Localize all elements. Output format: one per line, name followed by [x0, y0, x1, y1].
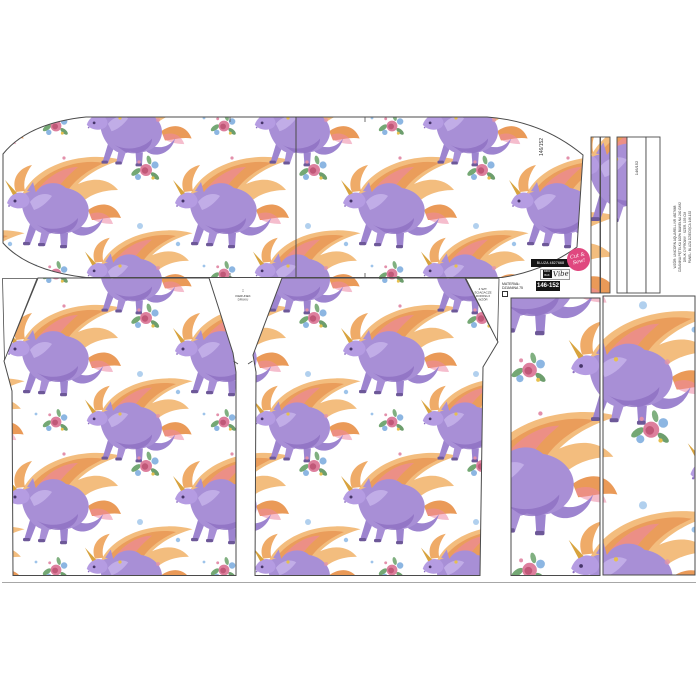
svg-text:WZÓR: WZÓR	[478, 297, 488, 302]
hood-piece-left	[511, 298, 600, 576]
bodice-front-piece	[4, 278, 236, 576]
panel-drawing: 146/152 ↕ KIERUNEK DRUKU 4 SZT. ŚCIĄGACZ…	[0, 0, 700, 700]
size-label-strip: 146/152	[634, 160, 639, 175]
cuff-strip-2	[601, 137, 611, 293]
size-label-sleeve: 146/152	[539, 138, 545, 156]
svg-text:DZIANINA PĘTELKA 100% BAWEŁNA: DZIANINA PĘTELKA 100% BAWEŁNA 240 G/M2	[678, 202, 682, 272]
fabric-panel-preview: 146/152 ↕ KIERUNEK DRUKU 4 SZT. ŚCIĄGACZ…	[0, 0, 700, 700]
sleeve-panel-piece	[3, 117, 583, 278]
grain-direction-note: ↕ KIERUNEK DRUKU	[235, 288, 250, 302]
blank-strip-1	[627, 137, 646, 293]
cuff-strip-1	[591, 137, 600, 293]
svg-text:WZÓR: UNICORN AQUARELL NR 4827: WZÓR: UNICORN AQUARELL NR 4827668	[672, 205, 677, 268]
bodice-back-piece	[253, 278, 498, 576]
production-info-text: WZÓR: UNICORN AQUARELL NR 4827668 DZIANI…	[672, 202, 692, 272]
svg-text:DRUKU: DRUKU	[238, 298, 249, 302]
blank-strip-2	[646, 137, 660, 293]
cuff-strip-3	[617, 137, 627, 293]
svg-text:PANEL: BLUZA DZIECIĘCA 146-152: PANEL: BLUZA DZIECIĘCA 146-152	[688, 211, 692, 264]
hood-piece-right	[603, 296, 695, 575]
bodice-notch-marks	[234, 361, 253, 364]
svg-text:DRUK CYFROWY · SZER. 155 CM: DRUK CYFROWY · SZER. 155 CM	[683, 211, 687, 262]
